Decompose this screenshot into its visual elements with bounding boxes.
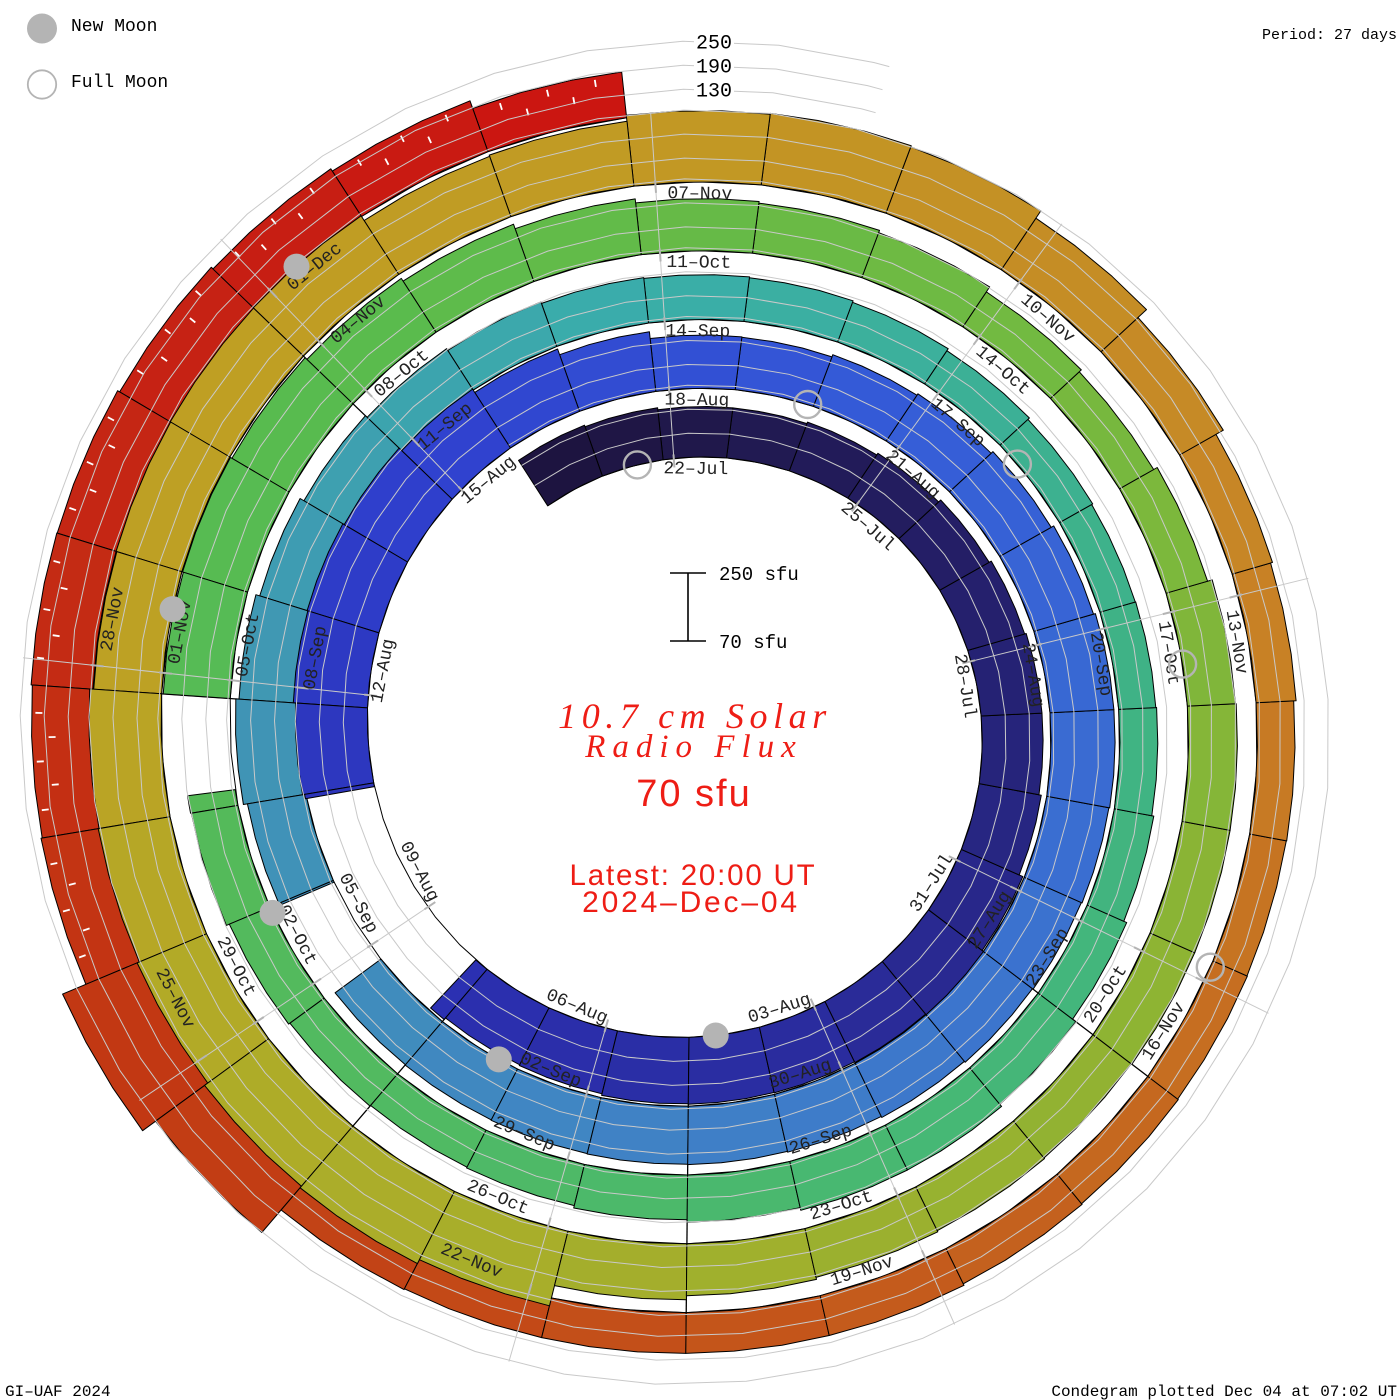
svg-text:Full Moon: Full Moon	[71, 73, 168, 93]
svg-text:11–Oct: 11–Oct	[666, 253, 731, 274]
svg-text:190: 190	[696, 56, 732, 79]
svg-text:14–Sep: 14–Sep	[665, 322, 730, 343]
svg-text:70 sfu: 70 sfu	[719, 632, 787, 654]
svg-text:130: 130	[696, 80, 732, 103]
svg-text:Period: 27 days: Period: 27 days	[1262, 27, 1397, 44]
svg-text:250: 250	[696, 32, 732, 55]
svg-text:70 sfu: 70 sfu	[636, 773, 752, 815]
svg-text:Condegram plotted Dec 04 at 07: Condegram plotted Dec 04 at 07:02 UT	[1051, 1383, 1397, 1400]
svg-text:07–Nov: 07–Nov	[667, 184, 732, 205]
svg-text:2024–Dec–04: 2024–Dec–04	[582, 886, 800, 919]
svg-text:22–Jul: 22–Jul	[663, 459, 728, 480]
svg-text:18–Aug: 18–Aug	[664, 390, 729, 411]
svg-text:250 sfu: 250 sfu	[719, 564, 799, 586]
svg-text:GI–UAF 2024: GI–UAF 2024	[5, 1383, 111, 1400]
svg-text:Radio Flux: Radio Flux	[584, 729, 803, 765]
svg-text:New Moon: New Moon	[71, 17, 157, 37]
